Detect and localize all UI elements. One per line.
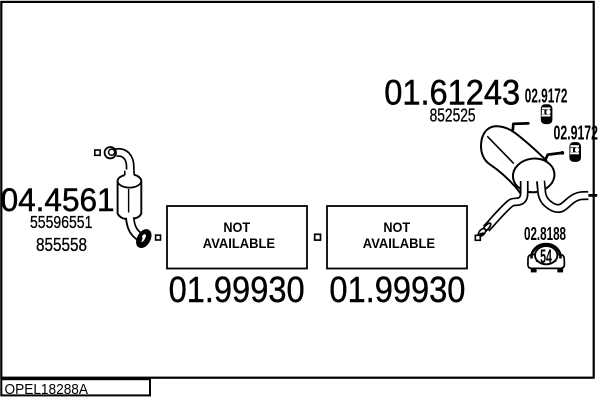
svg-text:OPEL18288A: OPEL18288A: [5, 381, 89, 398]
svg-text:01.99930: 01.99930: [329, 269, 465, 310]
svg-text:54: 54: [540, 247, 552, 268]
svg-text:AVAILABLE: AVAILABLE: [203, 236, 275, 251]
svg-text:AVAILABLE: AVAILABLE: [363, 236, 435, 251]
svg-text:02.8188: 02.8188: [524, 223, 566, 244]
svg-text:NOT: NOT: [383, 220, 411, 235]
svg-text:852525: 852525: [430, 106, 476, 126]
svg-text:02.9172: 02.9172: [554, 122, 599, 144]
svg-text:01.99930: 01.99930: [169, 269, 305, 310]
svg-text:NOT: NOT: [223, 220, 251, 235]
svg-text:55596551: 55596551: [30, 212, 92, 232]
svg-text:02.9172: 02.9172: [525, 85, 568, 107]
svg-text:855558: 855558: [36, 235, 87, 255]
